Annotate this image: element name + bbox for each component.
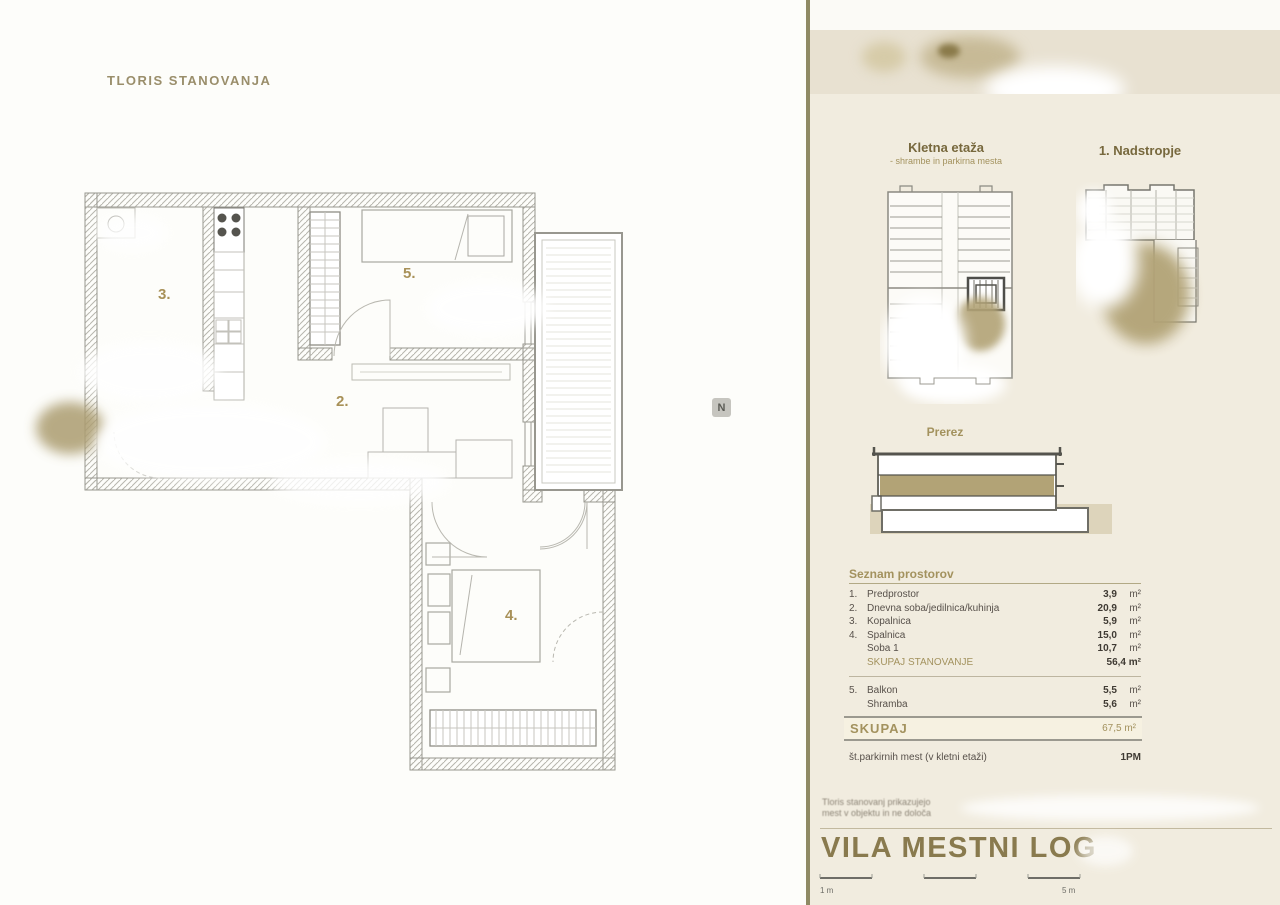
table-row: 1. Predprostor 3,9 m² — [849, 588, 1141, 602]
logo-smudge — [938, 44, 960, 58]
info-sidebar: Kletna etaža - shrambe in parkirna mesta… — [806, 0, 1280, 905]
table-row: 2. Dnevna soba/jedilnica/kuhinja 20,9 m² — [849, 602, 1141, 616]
first-floor-title: 1. Nadstropje — [1030, 143, 1250, 158]
table-row: 5. Balkon 5,5 m² — [849, 684, 1141, 698]
scale-bar — [818, 870, 1098, 886]
table-row: 4. Spalnica 15,0 m² — [849, 629, 1141, 643]
room-label-3: 3. — [158, 286, 171, 303]
scale-label-left: 1 m — [820, 886, 833, 895]
table-row: Soba 1 10,7 m² — [849, 642, 1141, 656]
total-label: SKUPAJ — [850, 721, 1102, 736]
room-label-5: 5. — [403, 265, 416, 282]
logo-band — [810, 30, 1280, 94]
room-list-header: Seznam prostorov — [849, 567, 1141, 584]
room-list-table-extra: 5. Balkon 5,5 m² Shramba 5,6 m² — [849, 684, 1141, 711]
table-divider — [849, 676, 1141, 677]
title-divider — [820, 828, 1272, 829]
section-title: Prerez — [835, 425, 1055, 439]
basement-title: Kletna etaža — [836, 140, 1056, 155]
floor-plan-drawing — [0, 0, 806, 905]
disclaimer-smudge — [960, 795, 1260, 821]
sidebar-top-strip — [810, 0, 1280, 30]
project-title: VILA MESTNI LOG — [821, 832, 1097, 865]
room-label-4: 4. — [505, 607, 518, 624]
page: TLORIS STANOVANJA — [0, 0, 1280, 905]
section-drawing — [866, 442, 1116, 538]
north-arrow-icon: N — [712, 398, 731, 417]
total-value: 67,5 m² — [1102, 723, 1136, 734]
title-smudge — [1078, 836, 1133, 866]
logo-smudge — [862, 42, 906, 72]
parking-row: št.parkirnih mest (v kletni etaži) 1PM — [849, 752, 1141, 763]
table-row: 3. Kopalnica 5,9 m² — [849, 615, 1141, 629]
floor-plan-panel: TLORIS STANOVANJA — [0, 0, 806, 905]
table-row: Shramba 5,6 m² — [849, 698, 1141, 712]
room-list-table: 1. Predprostor 3,9 m² 2. Dnevna soba/jed… — [849, 588, 1141, 669]
room-label-2: 2. — [336, 393, 349, 410]
scale-label-right: 5 m — [1062, 886, 1075, 895]
first-floor-plan-drawing — [1076, 182, 1206, 382]
basement-plan-drawing — [880, 182, 1020, 404]
subtotal-row: SKUPAJ STANOVANJE 56,4 m² — [849, 656, 1141, 670]
total-band: SKUPAJ 67,5 m² — [844, 716, 1142, 741]
